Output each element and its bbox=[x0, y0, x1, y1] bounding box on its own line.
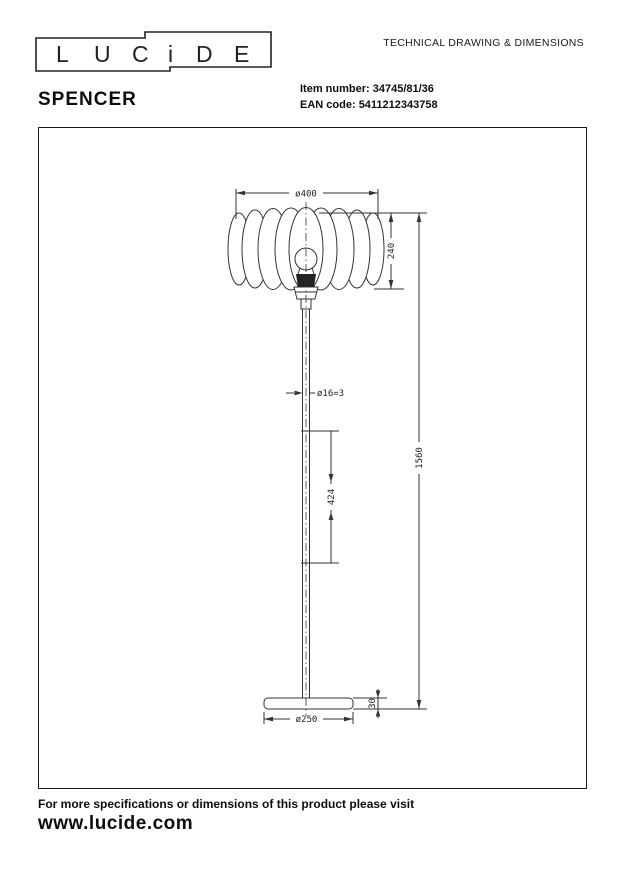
item-number-label: Item number: bbox=[300, 83, 370, 95]
dim-total-height: 1560 bbox=[353, 213, 427, 709]
ean-value: 5411212343758 bbox=[359, 99, 438, 111]
dim-total-height-label: 1560 bbox=[415, 447, 425, 469]
dim-tube-diameter: ø16=3 bbox=[286, 389, 344, 399]
logo-letter: U bbox=[94, 41, 111, 67]
lucide-logo: L U C i D E bbox=[34, 29, 274, 80]
lucide-logo-graphic: L U C i D E bbox=[34, 29, 274, 75]
item-number-row: Item number: 34745/81/36 bbox=[300, 81, 438, 97]
product-name: SPENCER bbox=[38, 89, 137, 111]
footer-note: For more specifications or dimensions of… bbox=[38, 797, 598, 811]
logo-letter: i bbox=[168, 41, 173, 67]
doc-title: TECHNICAL DRAWING & DIMENSIONS bbox=[383, 37, 584, 49]
item-info: Item number: 34745/81/36 EAN code: 54112… bbox=[300, 81, 438, 113]
ean-label: EAN code: bbox=[300, 99, 356, 111]
dim-base-diameter: ø250 bbox=[264, 712, 353, 725]
logo-letter: C bbox=[132, 41, 149, 67]
dim-tube-section-label: 424 bbox=[327, 489, 337, 505]
lamp-technical-drawing: ø400 240 1560 bbox=[39, 128, 585, 787]
dim-base-height: 30 bbox=[353, 689, 387, 718]
logo-letter: D bbox=[196, 41, 213, 67]
footer: For more specifications or dimensions of… bbox=[38, 797, 598, 835]
dim-tube-diameter-label: ø16=3 bbox=[317, 389, 344, 399]
dim-shade-diameter-label: ø400 bbox=[295, 190, 317, 200]
dim-base-height-label: 30 bbox=[368, 698, 378, 709]
dim-base-diameter-label: ø250 bbox=[296, 715, 318, 725]
ean-row: EAN code: 5411212343758 bbox=[300, 97, 438, 113]
item-number-value: 34745/81/36 bbox=[373, 83, 434, 95]
dim-shade-height-label: 240 bbox=[387, 243, 397, 259]
drawing-frame: ø400 240 1560 bbox=[38, 127, 587, 789]
logo-letter: L bbox=[56, 41, 69, 67]
lamp-base bbox=[264, 698, 353, 709]
website-url: www.lucide.com bbox=[38, 813, 598, 835]
logo-letter: E bbox=[234, 41, 249, 67]
dim-tube-section: 424 bbox=[301, 431, 339, 563]
